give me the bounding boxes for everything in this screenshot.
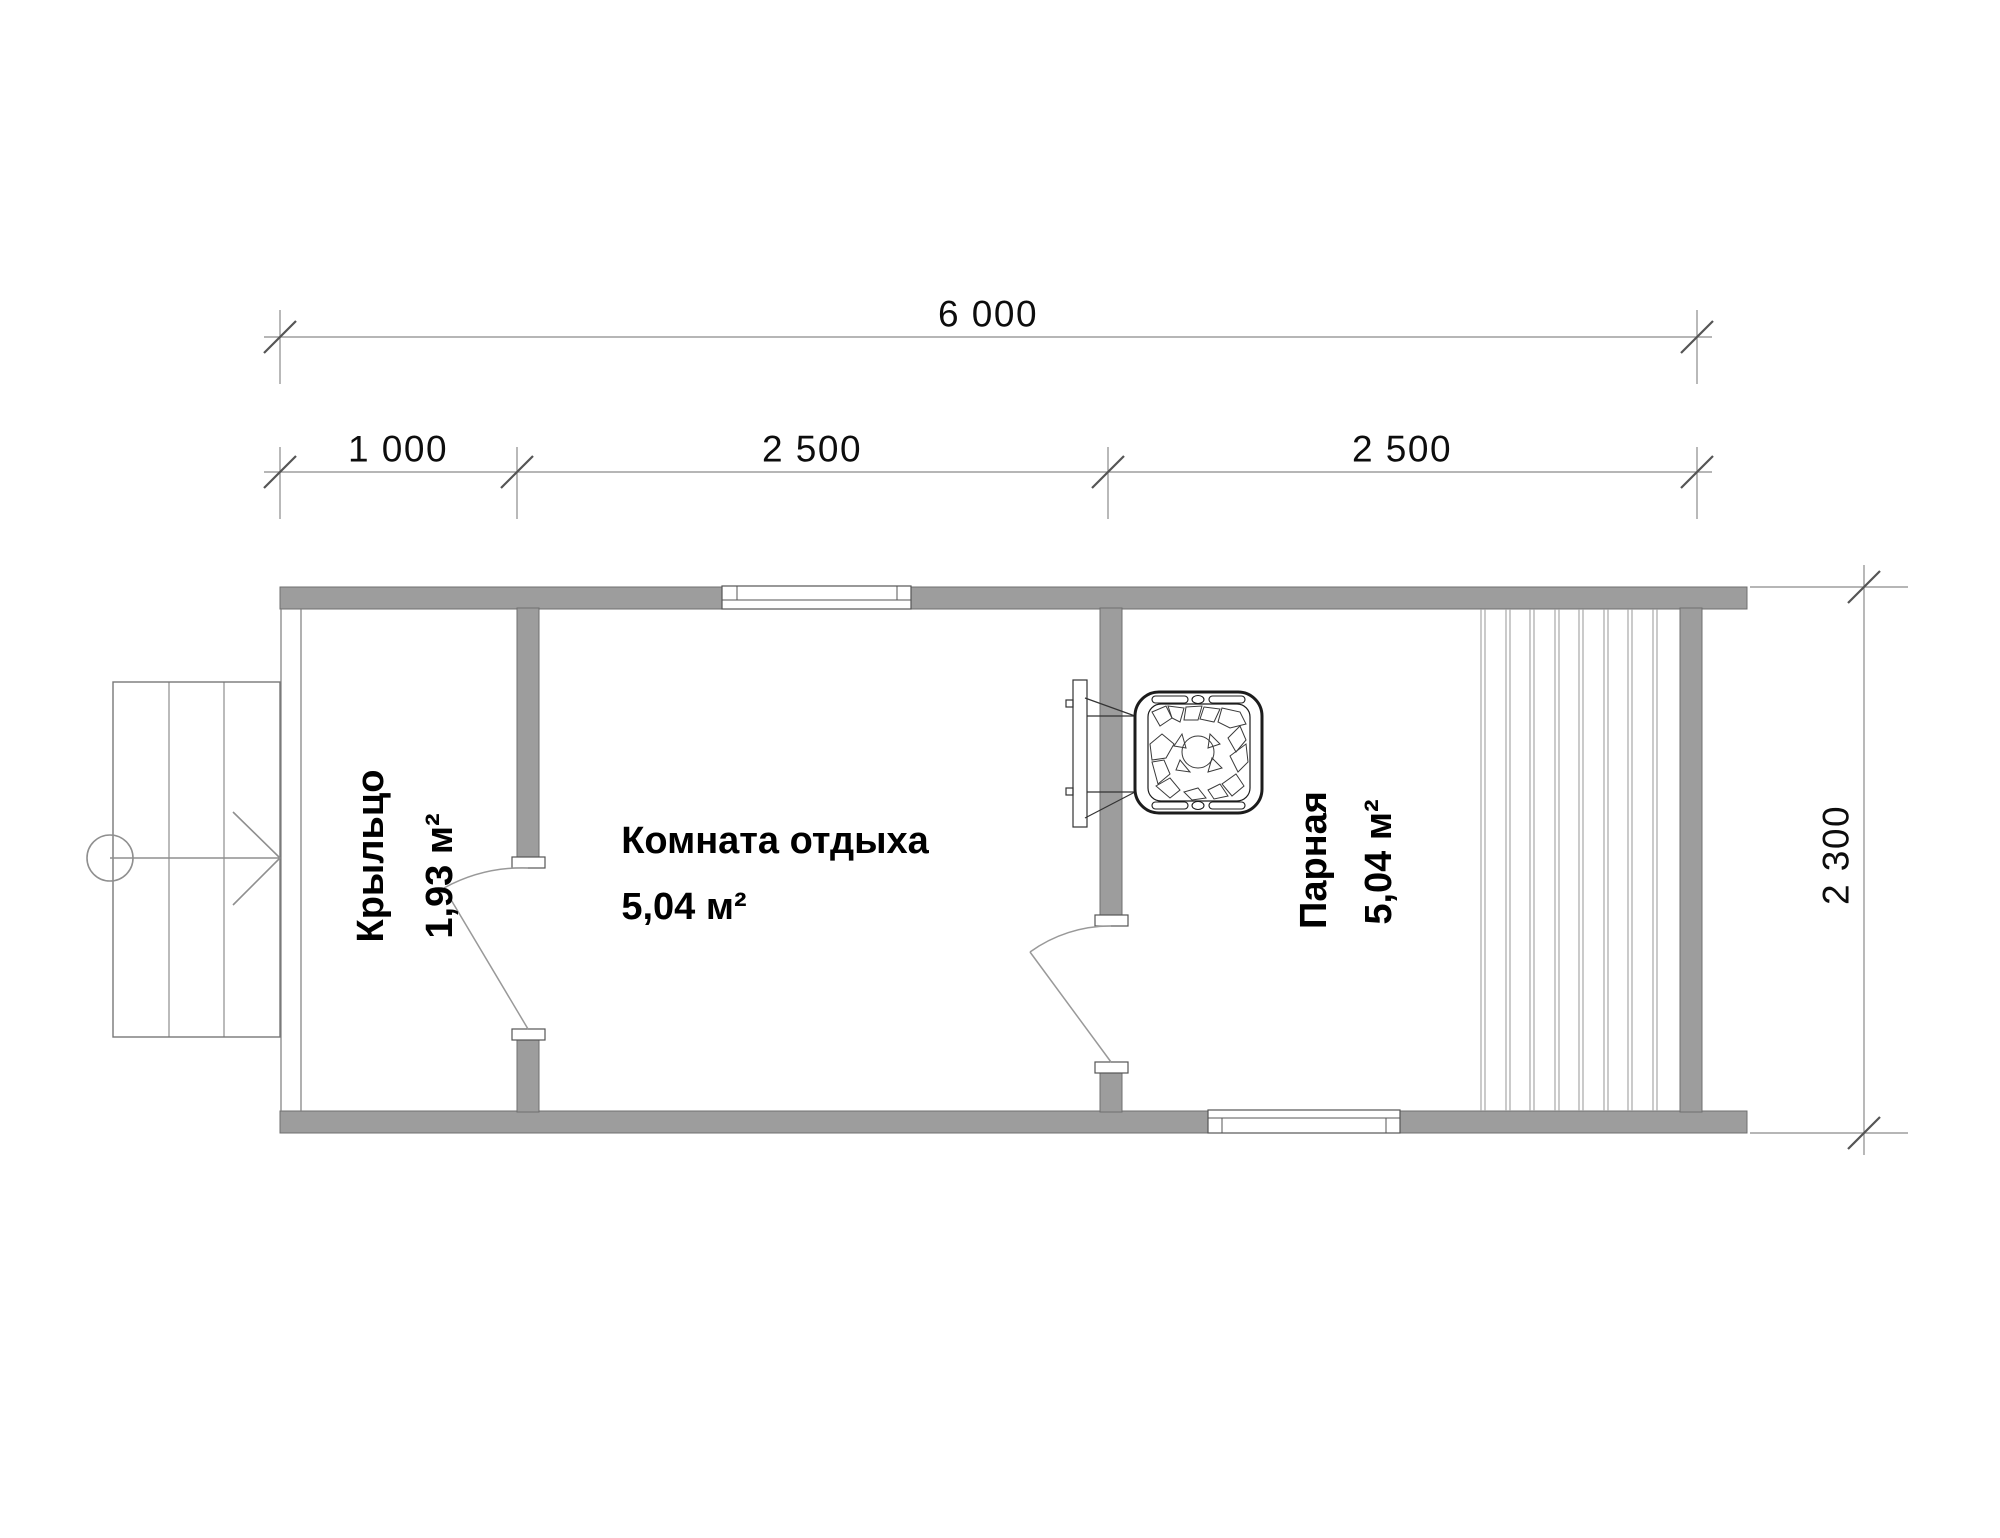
sauna-room-area: 5,04 м² bbox=[1360, 799, 1398, 924]
stove-stones bbox=[1150, 706, 1248, 800]
window-top bbox=[722, 586, 911, 609]
dim-total-width-label: 6 000 bbox=[938, 296, 1038, 333]
wall-porch-partition-lower bbox=[517, 1040, 539, 1112]
porch-open-wall bbox=[281, 609, 301, 1111]
lounge-room-area: 5,04 м² bbox=[621, 888, 746, 926]
wall-right bbox=[1680, 608, 1702, 1112]
floor-plan-drawing bbox=[0, 0, 2000, 1538]
wall-bottom bbox=[280, 1111, 1747, 1133]
dim-height-label: 2 300 bbox=[1818, 805, 1855, 905]
porch-room-label: Крыльцо bbox=[352, 770, 390, 943]
sauna-door-leaf bbox=[1030, 952, 1111, 1062]
dim-segment-1-label: 1 000 bbox=[348, 431, 448, 468]
wall-sauna-partition-lower bbox=[1100, 1073, 1122, 1112]
sauna-door bbox=[1030, 926, 1111, 1062]
wall-porch-partition-upper bbox=[517, 608, 539, 858]
entrance-arrow bbox=[87, 812, 280, 905]
entrance-steps bbox=[113, 682, 280, 1037]
dimension-line-segments bbox=[264, 447, 1713, 519]
dim-segment-3-label: 2 500 bbox=[1352, 431, 1452, 468]
floor-plan-page: 6 000 1 000 2 500 2 500 2 300 Крыльцо 1,… bbox=[0, 0, 2000, 1538]
lounge-room-label: Комната отдыха bbox=[621, 822, 929, 860]
dim-segment-2-label: 2 500 bbox=[762, 431, 862, 468]
stove bbox=[1135, 692, 1262, 813]
walls bbox=[280, 587, 1747, 1133]
wall-sauna-partition-upper bbox=[1100, 608, 1122, 916]
sauna-room-label: Парная bbox=[1295, 791, 1333, 929]
stove-body bbox=[1135, 692, 1262, 813]
sauna-bench-slats bbox=[1481, 609, 1657, 1111]
window-bottom bbox=[1208, 1110, 1400, 1133]
porch-room-area: 1,93 м² bbox=[421, 813, 459, 938]
wall-top bbox=[280, 587, 1747, 609]
sauna-door-swing-arc bbox=[1030, 926, 1111, 952]
door-jamb-caps bbox=[512, 857, 1128, 1073]
